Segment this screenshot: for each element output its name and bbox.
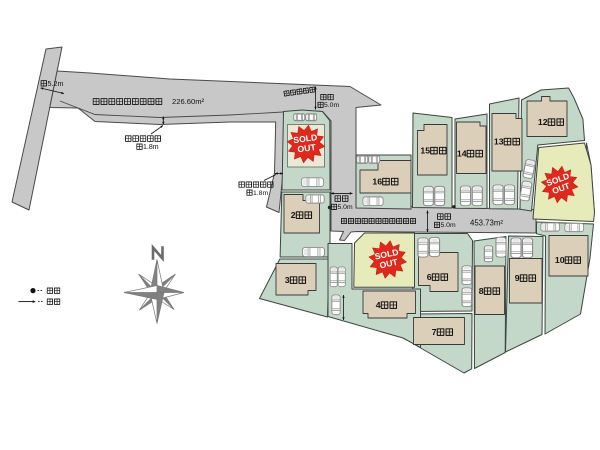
svg-text:2: 2 bbox=[291, 210, 296, 220]
svg-text:226.60m²: 226.60m² bbox=[172, 97, 205, 106]
svg-text:14: 14 bbox=[457, 149, 467, 159]
svg-text:12: 12 bbox=[538, 117, 548, 127]
svg-text:1.8m: 1.8m bbox=[143, 144, 159, 151]
svg-text:3: 3 bbox=[285, 275, 290, 285]
svg-text:453.73m²: 453.73m² bbox=[470, 218, 503, 227]
svg-text:16: 16 bbox=[372, 177, 382, 187]
svg-text:9: 9 bbox=[515, 273, 520, 283]
svg-text:8: 8 bbox=[479, 286, 484, 296]
svg-text:10: 10 bbox=[555, 255, 565, 265]
svg-text:4: 4 bbox=[376, 300, 381, 310]
svg-text:5.0m: 5.0m bbox=[338, 204, 353, 211]
svg-text:1.8m: 1.8m bbox=[253, 190, 268, 197]
svg-text:6: 6 bbox=[427, 272, 432, 282]
svg-text:13: 13 bbox=[494, 137, 504, 147]
svg-text:7: 7 bbox=[432, 327, 437, 337]
svg-text:5.0m: 5.0m bbox=[324, 102, 339, 109]
svg-text:5.2m: 5.2m bbox=[48, 79, 64, 88]
svg-text:5.0m: 5.0m bbox=[441, 222, 456, 229]
svg-text:15: 15 bbox=[420, 146, 430, 156]
